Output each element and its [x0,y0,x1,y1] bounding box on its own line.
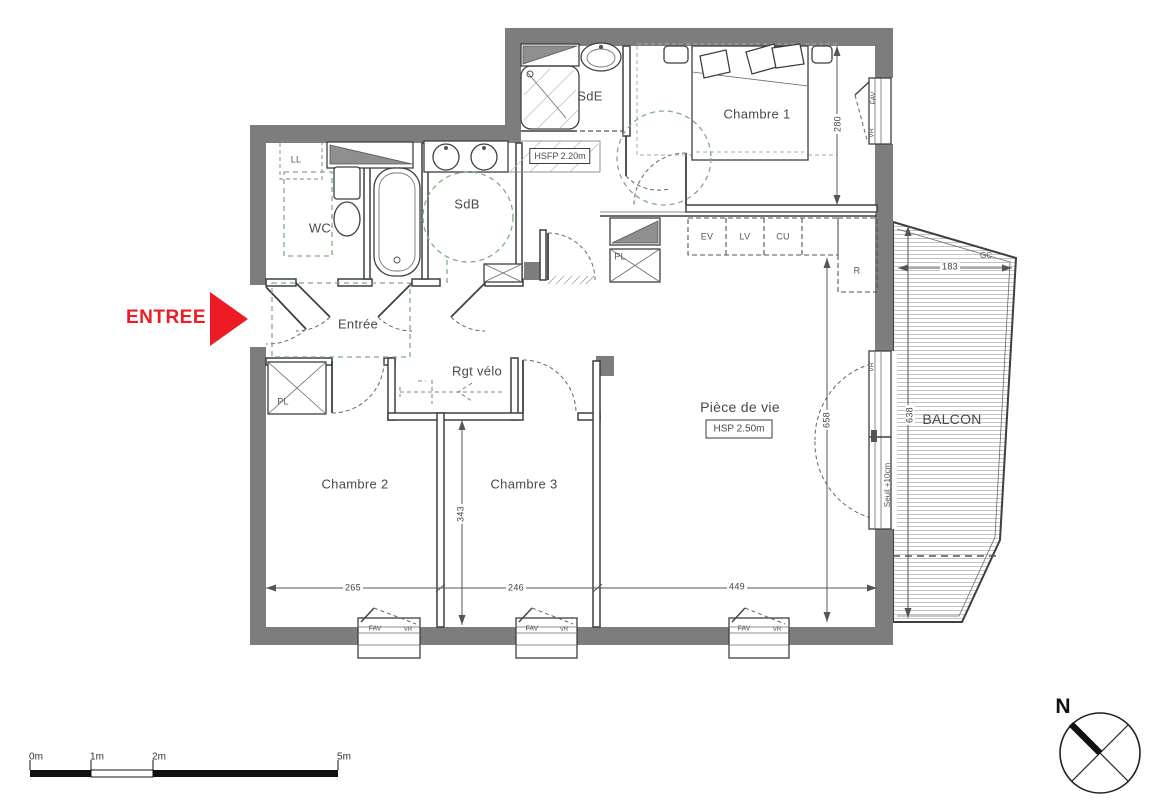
floor-plan-page: SdE Chambre 1 WC SdB Entrée Rgt vélo Cha… [0,0,1153,800]
dim-balcon-width: 183 [940,263,960,272]
dim-piece-depth: 658 [823,410,832,430]
equip-label-lv: LV [740,233,751,242]
room-label-sdb: SdB [454,198,479,211]
equip-label-cu: CU [776,233,790,242]
vr-label-window2: VR [560,627,568,633]
equip-label-pl-kitchen: PL [614,253,626,262]
room-label-entree: Entrée [338,318,378,331]
entry-marker-label: ENTREE [126,307,206,329]
dim-balcon-depth: 638 [906,405,915,425]
seuil-label: Seuil +10cm [884,463,892,507]
hsp-note: HSP 2.50m [706,420,773,439]
fav-label-chambre1: FAV [871,92,878,105]
room-label-wc: WC [309,222,331,235]
dim-piece-width: 449 [727,583,747,592]
equip-label-r: R [854,267,861,276]
scale-label-2m: 2m [152,752,166,763]
kitchen-fixtures [610,218,877,292]
room-label-chambre3: Chambre 3 [490,478,557,491]
vr-label-window1: VR [404,627,412,633]
equip-label-gc: GC [980,252,992,260]
fav-label-window1: FAV [369,626,382,633]
scale-label-5m: 5m [337,752,351,763]
north-label: N [1055,695,1070,719]
equip-label-pl-entree: PL [277,398,289,407]
scale-label-0m: 0m [29,752,43,763]
room-label-chambre2: Chambre 2 [321,478,388,491]
fav-label-window3: FAV [738,626,751,633]
north-compass-icon [1060,713,1140,793]
dim-chambre3-depth: 343 [457,504,466,524]
room-label-rgt-velo: Rgt vélo [452,365,502,378]
dim-chambre2-width: 265 [343,584,363,593]
fav-label-window2: FAV [526,626,539,633]
entry-arrow-icon [210,292,248,346]
vr-label-window3: VR [773,627,781,633]
equip-label-ev: EV [701,233,714,242]
vr-label-balcony: VR [869,362,876,372]
floor-plan-drawing [0,0,1153,800]
room-label-chambre1: Chambre 1 [723,108,790,121]
room-label-piece-de-vie: Pièce de vie [700,400,780,414]
scale-bar [30,760,338,777]
bedroom1-furniture [637,44,837,160]
vr-label-chambre1: VR [869,128,876,138]
room-label-sde: SdE [577,90,602,103]
dim-chambre3-width: 246 [506,584,526,593]
bike-storage-symbol [400,380,505,404]
room-label-balcon: BALCON [922,412,981,426]
equip-label-ll: LL [291,156,302,165]
scale-label-1m: 1m [90,752,104,763]
hsfp-note: HSFP 2.20m [529,148,590,164]
dim-chambre1-depth: 280 [834,114,843,134]
